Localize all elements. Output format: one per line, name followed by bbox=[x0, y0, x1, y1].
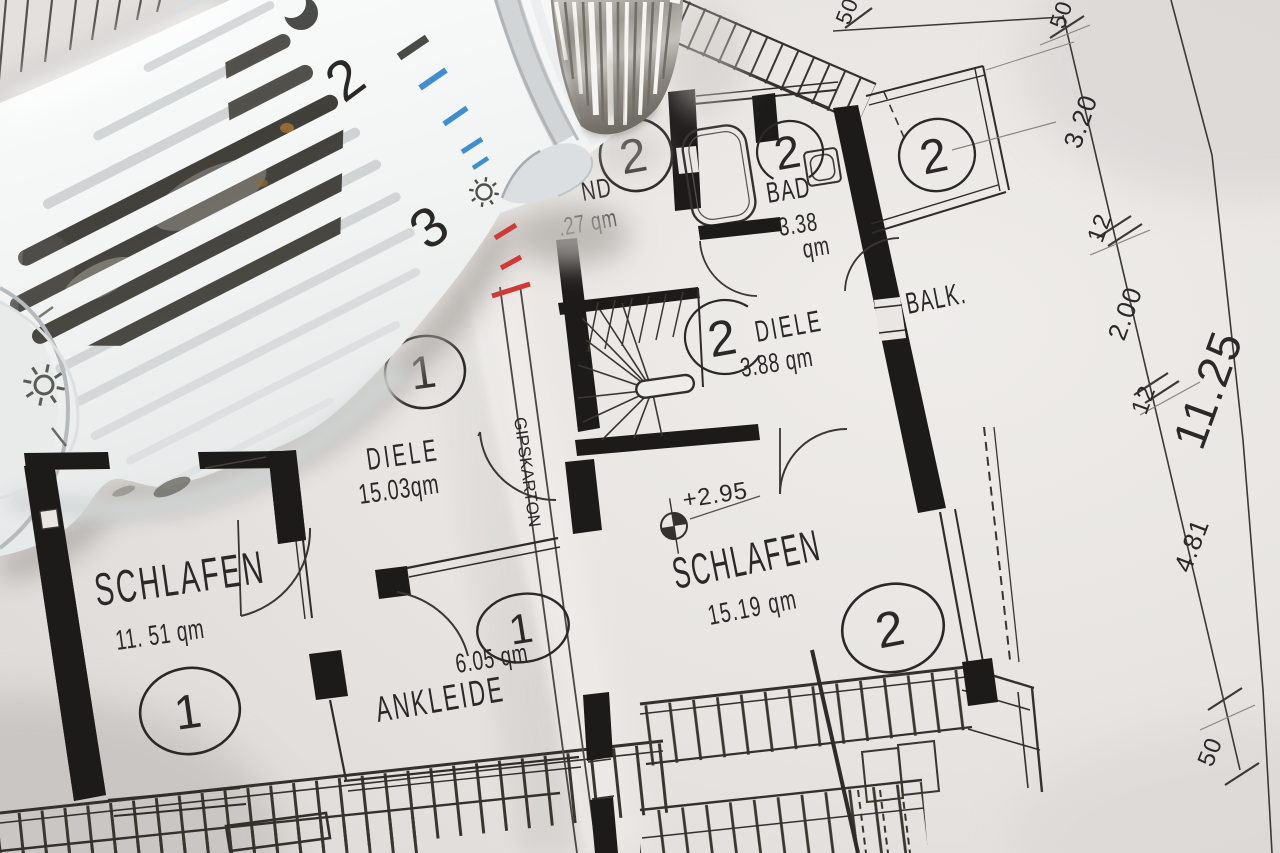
svg-text:qm: qm bbox=[800, 230, 832, 264]
